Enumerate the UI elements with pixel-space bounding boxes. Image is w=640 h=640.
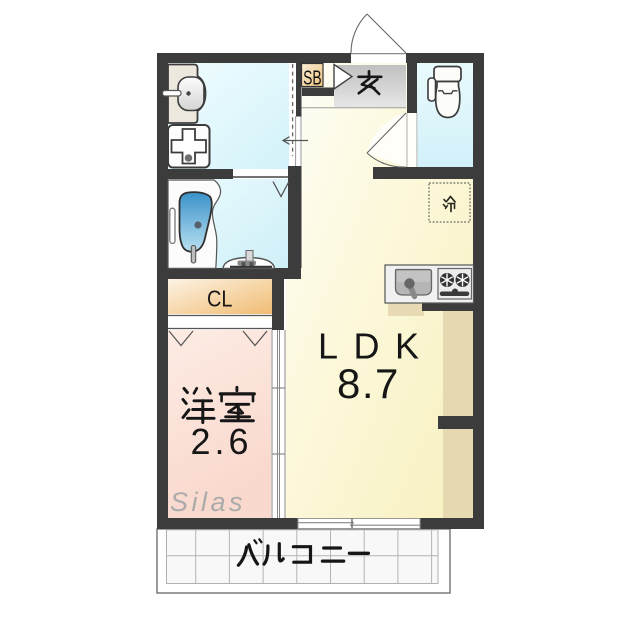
svg-text:CL: CL — [207, 286, 233, 312]
svg-text:2.6: 2.6 — [191, 421, 253, 462]
svg-text:Silas: Silas — [170, 487, 246, 517]
svg-text:8.7: 8.7 — [337, 360, 400, 407]
svg-text:SB: SB — [303, 68, 322, 90]
